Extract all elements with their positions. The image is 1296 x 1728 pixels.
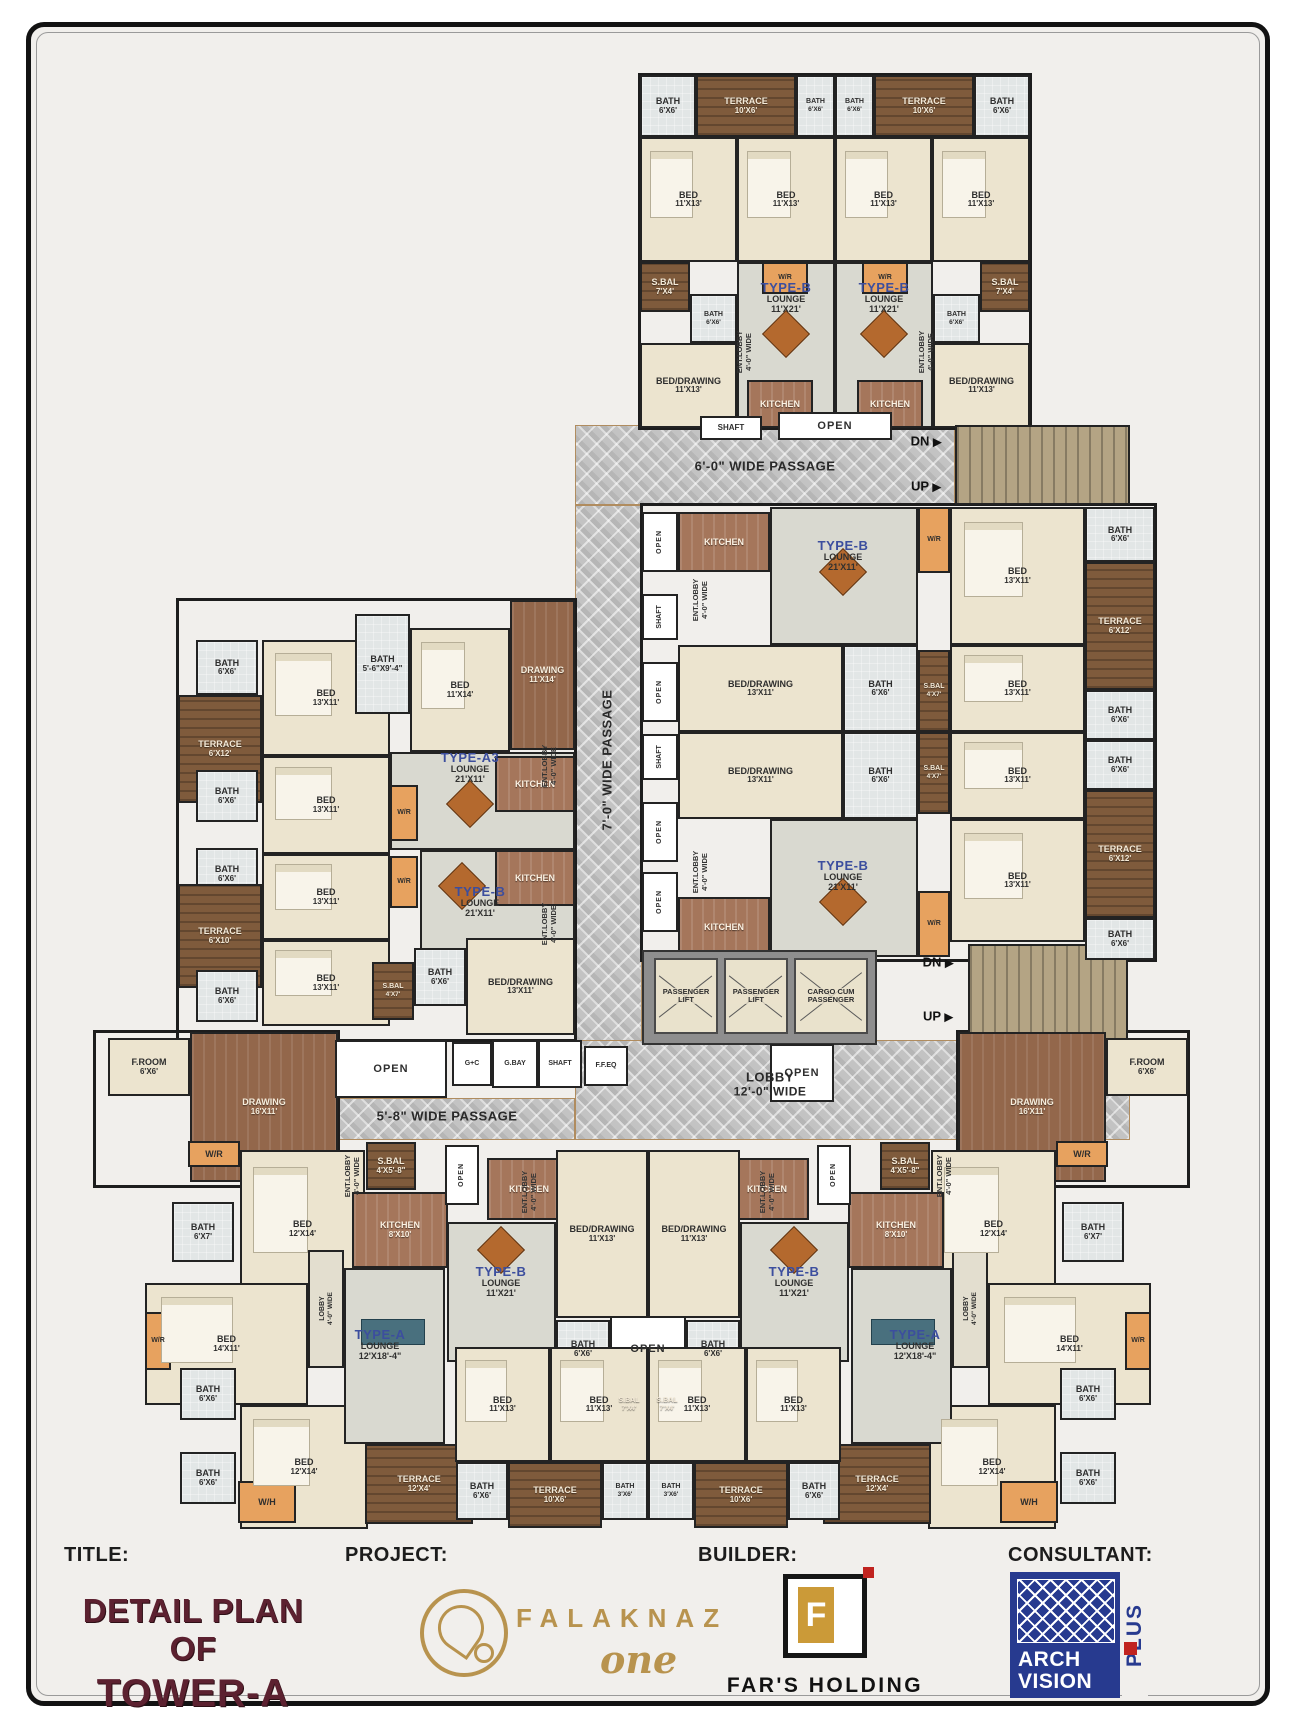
w-r-label: W/R: [1131, 1337, 1145, 1345]
bed-label: BED11'X13': [489, 1395, 516, 1414]
bath-label: BATH6'X6': [470, 1481, 494, 1500]
terrace-label: TERRACE10'X6': [533, 1485, 577, 1504]
w-r-label: W/R: [927, 536, 941, 544]
w-r-area: W/R: [918, 891, 950, 957]
bed-area: BED11'X13': [746, 1347, 841, 1462]
drawing-title-line1: DETAIL PLAN OF: [58, 1592, 328, 1668]
bath-area: BATH6'X6': [180, 1368, 236, 1420]
bath-area: BATH6'X6': [974, 75, 1030, 137]
shaft-label: SHAFT: [656, 745, 664, 768]
terrace-label: TERRACE6'X12': [1098, 844, 1142, 863]
bed-area: BED13'X11': [950, 507, 1085, 645]
bed-drawing-area: BED/DRAWING13'X11': [678, 732, 843, 819]
bath-label: BATH6'X6': [1108, 755, 1132, 774]
w-r-label: W/R: [397, 878, 411, 886]
bath-area: BATH6'X6': [788, 1462, 840, 1520]
bed-label: BED11'X13': [773, 190, 800, 209]
open-label: OPEN: [656, 530, 664, 554]
builder-name: FAR'S HOLDING: [700, 1674, 950, 1698]
bed-area: BED11'X13': [932, 137, 1030, 262]
kitchen-area: KITCHEN: [678, 512, 770, 572]
title-label: TITLE:: [64, 1544, 129, 1567]
bath-label: BATH6'X6': [868, 679, 892, 698]
open-area: OPEN: [642, 662, 678, 722]
bed-label: BED11'X13': [684, 1395, 711, 1414]
floor-plan-sheet: BATH6'X6'TERRACE10'X6'BATH6'X6'BATH6'X6'…: [0, 0, 1296, 1728]
ent-lobby-label: ENT.LOBBY4'-0" WIDE: [735, 331, 753, 374]
bath-label: BATH6'X6': [701, 1339, 725, 1358]
bath-label: BATH6'X6': [215, 658, 239, 677]
s-bal-area: S.BAL4'X7': [918, 732, 950, 814]
f-room-label: F.ROOM6'X6': [132, 1057, 167, 1076]
bed-area: BED11'X13': [455, 1347, 550, 1462]
stair-arrow-icon: ▶: [932, 482, 940, 494]
bed-label: BED12'X14': [980, 1219, 1007, 1238]
open-area: OPEN: [817, 1145, 851, 1205]
ent-lobby-label: ENT.LOBBY4'-0" WIDE: [917, 331, 935, 374]
archvision-pattern-icon: [1017, 1579, 1115, 1643]
project-label: PROJECT:: [345, 1544, 448, 1567]
kitchen-label: KITCHEN: [704, 537, 744, 547]
archvision-red-square-icon: [1124, 1642, 1137, 1655]
type-a-unit-label: TYPE-ALOUNGE12'X18'-4": [890, 1328, 941, 1362]
shaft-area: SHAFT: [700, 416, 762, 440]
bath-label: BATH6'X7': [191, 1222, 215, 1241]
s-bal-label: S.BAL4'X5'-8": [891, 1156, 920, 1175]
builder-logo-red-dot-icon: [863, 1567, 874, 1578]
bed-drawing-label: BED/DRAWING11'X13': [570, 1224, 635, 1243]
builder-logo: F FAR'S HOLDING: [700, 1574, 950, 1698]
stair-dn-label: DN ▶: [923, 955, 954, 970]
bed-label: BED13'X11': [1004, 766, 1031, 785]
bath-area: BATH3'X6': [602, 1462, 648, 1520]
bed-drawing-area: BED/DRAWING11'X13': [933, 343, 1030, 428]
bed-area: BED13'X11': [950, 819, 1085, 942]
kitchen-label: KITCHEN: [704, 922, 744, 932]
kitchen-area: KITCHEN8'X10': [352, 1192, 448, 1268]
f-room-label: F.ROOM6'X6': [1130, 1057, 1165, 1076]
open-area: OPEN: [778, 412, 892, 440]
bed-area: BED11'X13': [640, 137, 737, 262]
bed-drawing-label: BED/DRAWING13'X11': [488, 977, 553, 996]
stair-arrow-icon: ▶: [933, 437, 941, 449]
bed-drawing-area: BED/DRAWING11'X13': [556, 1150, 648, 1318]
terrace-area: TERRACE6'X12': [1085, 562, 1155, 690]
cargo-cum-passenger-label: CARGO CUM PASSENGER: [796, 988, 866, 1005]
bed-label: BED13'X11': [313, 887, 340, 906]
open-area: OPEN: [642, 512, 678, 572]
type-b-unit-label: TYPE-BLOUNGE11'X21': [769, 1265, 820, 1299]
fars-holding-logo-icon: F: [783, 1574, 867, 1658]
consultant-name-vision: VISION: [1018, 1670, 1092, 1693]
s-bal-label: S.BAL7'X4': [992, 277, 1019, 296]
bath-label: BATH6'X6': [215, 786, 239, 805]
bath-area: BATH6'X7': [1062, 1202, 1124, 1262]
bed-area: BED11'X13': [835, 137, 932, 262]
terrace-label: TERRACE12'X4': [855, 1474, 899, 1493]
consultant-name: ARCH VISION: [1018, 1649, 1092, 1692]
drawing-label: DRAWING16'X11': [1010, 1097, 1054, 1116]
project-name: FALAKNAZ: [516, 1603, 728, 1634]
6-0-wide-passage-label: 6'-0" WIDE PASSAGE: [695, 460, 836, 475]
consultant-name-arch: ARCH: [1018, 1648, 1081, 1671]
open-area: OPEN: [445, 1145, 479, 1205]
terrace-area: TERRACE10'X6': [508, 1462, 602, 1528]
bath-area: BATH6'X6': [1085, 918, 1155, 960]
bath-label: BATH6'X6': [806, 98, 825, 113]
lobby-label: LOBBY4'-0" WIDE: [318, 1293, 333, 1326]
bath-label: BATH6'X6': [1076, 1468, 1100, 1487]
falaknaz-emblem-icon: [420, 1589, 508, 1677]
type-b-unit-label: TYPE-BLOUNGE21'X11': [455, 885, 506, 919]
open-area: OPEN: [642, 872, 678, 932]
shaft-label: SHAFT: [718, 424, 745, 433]
bath-label: BATH6'X6': [571, 1339, 595, 1358]
bed-label: BED12'X14': [289, 1219, 316, 1238]
bath-label: BATH6'X6': [656, 96, 680, 115]
bath-label: BATH6'X7': [1081, 1222, 1105, 1241]
bed-label: BED11'X13': [586, 1395, 613, 1414]
project-name-word: one: [600, 1637, 677, 1682]
s-bal-label: S.BAL7'X4': [619, 1397, 640, 1412]
bath-area: BATH6'X6': [456, 1462, 508, 1520]
lobby-label: LOBBY4'-0" WIDE: [962, 1293, 977, 1326]
w-r-label: W/R: [927, 920, 941, 928]
bath-label: BATH6'X6': [1108, 705, 1132, 724]
bed-label: BED11'X14': [447, 680, 474, 699]
open-label: OPEN: [656, 890, 664, 914]
bath-label: BATH6'X6': [802, 1481, 826, 1500]
s-bal-label: S.BAL4'X7': [924, 683, 945, 698]
stair-arrow-icon: ▶: [944, 1012, 952, 1024]
bath-area: BATH6'X6': [933, 294, 980, 343]
bath-area: BATH6'X6': [796, 75, 835, 137]
bath-area: BATH6'X6': [1085, 690, 1155, 740]
s-bal-label: S.BAL7'X4': [657, 1397, 678, 1412]
bath-label: BATH6'X6': [1108, 525, 1132, 544]
open-label: OPEN: [630, 1343, 665, 1355]
ent-lobby-label: ENT.LOBBY4'-0" WIDE: [691, 851, 709, 894]
bath-area: BATH6'X6': [180, 1452, 236, 1504]
bed-area: BED13'X11': [950, 645, 1085, 732]
w-r-label: W/R: [151, 1337, 165, 1345]
bed-label: BED14'X11': [213, 1334, 240, 1353]
w-h-label: W/H: [1020, 1497, 1038, 1507]
w-r-area: W/R: [390, 856, 418, 908]
s-bal-area: S.BAL4'X5'-8": [880, 1142, 930, 1190]
bath-area: BATH3'X6': [648, 1462, 694, 1520]
bath-label: BATH6'X6': [947, 311, 966, 326]
bed-label: BED13'X11': [313, 688, 340, 707]
kitchen-area: KITCHEN: [495, 756, 575, 812]
kitchen-label: KITCHEN: [515, 873, 555, 883]
bath-label: BATH6'X6': [428, 967, 452, 986]
bath-label: BATH3'X6': [662, 1483, 681, 1498]
open-area: OPEN: [335, 1040, 447, 1098]
f-f-eq-area: F.F.EQ: [584, 1046, 628, 1086]
bed-drawing-area: BED/DRAWING13'X11': [678, 645, 843, 732]
bath-area: BATH6'X6': [196, 770, 258, 822]
ent-lobby-label: ENT.LOBBY4'-0" WIDE: [540, 745, 558, 788]
terrace-label: TERRACE10'X6': [724, 96, 768, 115]
bed-label: BED11'X13': [675, 190, 702, 209]
drawing-area: DRAWING11'X14': [510, 600, 575, 750]
bath-area: BATH6'X6': [196, 970, 258, 1022]
stair-dn-label: DN ▶: [911, 434, 942, 449]
f-room-area: F.ROOM6'X6': [1106, 1038, 1188, 1096]
bath-label: BATH6'X6': [990, 96, 1014, 115]
kitchen-area: KITCHEN8'X10': [848, 1192, 944, 1268]
kitchen-area: KITCHEN: [678, 897, 770, 957]
bed-drawing-area: BED/DRAWING13'X11': [466, 938, 575, 1035]
passenger-lift-area: PASSENGER LIFT: [654, 958, 718, 1034]
bath-label: BATH3'X6': [616, 1483, 635, 1498]
bed-label: BED14'X11': [1056, 1334, 1083, 1353]
bath-label: BATH6'X6': [196, 1468, 220, 1487]
bed-label: BED13'X11': [1004, 566, 1031, 585]
s-bal-label: S.BAL4'X5'-8": [377, 1156, 406, 1175]
stair-up-label: UP ▶: [911, 479, 941, 494]
bed-label: BED11'X13': [780, 1395, 807, 1414]
bed-label: BED11'X13': [968, 190, 995, 209]
w-r-area: W/R: [1125, 1312, 1151, 1370]
drawing-label: DRAWING16'X11': [242, 1097, 286, 1116]
type-b-unit-label: TYPE-BLOUNGE21'X11': [818, 859, 869, 893]
open-label: OPEN: [458, 1163, 466, 1187]
terrace-label: TERRACE6'X12': [198, 739, 242, 758]
open-label: OPEN: [656, 820, 664, 844]
type-a3-unit-label: TYPE-A3LOUNGE21'X11': [441, 751, 499, 785]
bath-label: BATH6'X6': [215, 864, 239, 883]
shaft-label: SHAFT: [656, 605, 664, 628]
s-bal-label: S.BAL4'X7': [924, 765, 945, 780]
kitchen-area: KITCHEN: [495, 850, 575, 906]
passenger-lift-label: PASSENGER LIFT: [656, 988, 716, 1005]
w-r-area: W/R: [390, 785, 418, 841]
bath-label: BATH6'X6': [1076, 1384, 1100, 1403]
bed-area: BED13'X11': [262, 854, 390, 940]
bed-label: BED12'X14': [291, 1457, 318, 1476]
bed-label: BED13'X11': [313, 973, 340, 992]
bath-label: BATH6'X6': [196, 1384, 220, 1403]
ent-lobby-label: ENT.LOBBY4'-0" WIDE: [343, 1155, 361, 1198]
w-h-area: W/H: [238, 1481, 296, 1523]
f-room-area: F.ROOM6'X6': [108, 1038, 190, 1096]
bath-area: BATH6'X6': [414, 948, 466, 1006]
open-label: OPEN: [817, 420, 852, 432]
drawing-label: DRAWING11'X14': [521, 665, 565, 684]
kitchen-label: KITCHEN8'X10': [876, 1220, 916, 1239]
bath-area: BATH6'X6': [196, 640, 258, 695]
bath-area: BATH6'X6': [843, 732, 918, 819]
g-c-area: G+C: [452, 1042, 492, 1086]
bed-drawing-label: BED/DRAWING13'X11': [728, 679, 793, 698]
ent-lobby-label: ENT.LOBBY4'-0" WIDE: [935, 1155, 953, 1198]
consultant-logo: ARCH VISION PLUS: [1010, 1572, 1160, 1700]
type-b-unit-label: TYPE-BLOUNGE11'X21': [761, 281, 812, 315]
s-bal-area: S.BAL4'X5'-8": [366, 1142, 416, 1190]
bath-area: BATH6'X6': [1060, 1368, 1116, 1420]
terrace-label: TERRACE12'X4': [397, 1474, 441, 1493]
w-r-label: W/R: [1073, 1149, 1091, 1159]
type-b-unit-label: TYPE-BLOUNGE11'X21': [476, 1265, 527, 1299]
bed-label: BED13'X11': [1004, 871, 1031, 890]
bath-area: BATH6'X7': [172, 1202, 234, 1262]
ent-lobby-label: ENT.LOBBY4'-0" WIDE: [758, 1171, 776, 1214]
bath-label: BATH6'X6': [868, 766, 892, 785]
ent-lobby-label: ENT.LOBBY4'-0" WIDE: [520, 1171, 538, 1214]
builder-label: BUILDER:: [698, 1544, 798, 1567]
bed-drawing-label: BED/DRAWING13'X11': [728, 766, 793, 785]
bath-label: BATH6'X6': [845, 98, 864, 113]
terrace-label: TERRACE6'X12': [1098, 616, 1142, 635]
w-r-label: W/R: [397, 809, 411, 817]
g-bay-area: G.BAY: [492, 1040, 538, 1088]
consultant-plus-strip: PLUS: [1122, 1572, 1148, 1698]
7-0-wide-passage-label: 7'-0" WIDE PASSAGE: [601, 690, 616, 831]
bed-area: BED13'X11': [950, 732, 1085, 819]
terrace-area: TERRACE10'X6': [874, 75, 974, 137]
kitchen-label: KITCHEN: [760, 399, 800, 409]
builder-initial: F: [798, 1587, 834, 1643]
type-b-unit-label: TYPE-BLOUNGE11'X21': [859, 281, 910, 315]
w-r-label: W/R: [205, 1149, 223, 1159]
bath-area: BATH5'-6"X9'-4": [355, 614, 410, 714]
terrace-label: TERRACE10'X6': [719, 1485, 763, 1504]
consultant-label: CONSULTANT:: [1008, 1544, 1153, 1567]
terrace-label: TERRACE6'X10': [198, 926, 242, 945]
s-bal-area: S.BAL7'X4': [640, 262, 690, 312]
terrace-area: TERRACE10'X6': [694, 1462, 788, 1528]
w-r-area: W/R: [188, 1141, 240, 1167]
s-bal-area: S.BAL4'X7': [372, 962, 414, 1020]
consultant-name-plus: PLUS: [1123, 1603, 1147, 1667]
drawing-title-line2: TOWER-A: [58, 1672, 328, 1716]
stair-arrow-icon: ▶: [945, 958, 953, 970]
w-r-area: W/R: [918, 507, 950, 573]
drawing-title: DETAIL PLAN OF TOWER-A: [58, 1592, 328, 1716]
bath-area: BATH6'X6': [835, 75, 874, 137]
bath-area: BATH6'X6': [1085, 507, 1155, 562]
lobby-area: LOBBY4'-0" WIDE: [308, 1250, 344, 1368]
archvision-logo-icon: ARCH VISION: [1010, 1572, 1120, 1698]
g-c-label: G+C: [465, 1060, 480, 1068]
bed-label: BED11'X13': [870, 190, 897, 209]
5-8-wide-passage-label: 5'-8" WIDE PASSAGE: [377, 1110, 518, 1125]
kitchen-label: KITCHEN8'X10': [380, 1220, 420, 1239]
passenger-lift-label: PASSENGER LIFT: [726, 988, 786, 1005]
bed-drawing-label: BED/DRAWING11'X13': [656, 376, 721, 395]
f-f-eq-label: F.F.EQ: [595, 1062, 616, 1070]
bed-area: BED11'X13': [737, 137, 835, 262]
bed-drawing-label: BED/DRAWING11'X13': [949, 376, 1014, 395]
terrace-label: TERRACE10'X6': [902, 96, 946, 115]
bed-label: BED13'X11': [313, 795, 340, 814]
s-bal-label: S.BAL4'X7': [383, 983, 404, 998]
w-h-label: W/H: [258, 1497, 276, 1507]
g-bay-label: G.BAY: [504, 1060, 526, 1068]
open-label: OPEN: [830, 1163, 838, 1187]
lobby-area: LOBBY4'-0" WIDE: [952, 1250, 988, 1368]
bath-label: BATH6'X6': [215, 986, 239, 1005]
shaft-area: SHAFT: [538, 1040, 582, 1088]
lobby-label: LOBBY12'-0" WIDE: [734, 1071, 807, 1100]
s-bal-area: S.BAL7'X4': [980, 262, 1030, 312]
type-b-unit-label: TYPE-BLOUNGE21'X11': [818, 539, 869, 573]
ent-lobby-label: ENT.LOBBY4'-0" WIDE: [691, 579, 709, 622]
floor-plan: BATH6'X6'TERRACE10'X6'BATH6'X6'BATH6'X6'…: [0, 0, 1296, 1530]
bath-area: BATH6'X6': [843, 645, 918, 732]
bed-label: BED13'X11': [1004, 679, 1031, 698]
shaft-area: SHAFT: [642, 594, 678, 640]
ent-lobby-label: ENT.LOBBY4'-0" WIDE: [540, 903, 558, 946]
kitchen-label: KITCHEN: [870, 399, 910, 409]
bath-area: BATH6'X6': [1085, 740, 1155, 790]
stair-up-label: UP ▶: [923, 1009, 953, 1024]
open-label: OPEN: [656, 680, 664, 704]
terrace-area: TERRACE6'X12': [1085, 790, 1155, 918]
bed-drawing-area: BED/DRAWING11'X13': [648, 1150, 740, 1318]
bath-label: BATH6'X6': [704, 311, 723, 326]
bed-area: BED13'X11': [262, 940, 390, 1026]
bath-area: BATH6'X6': [640, 75, 696, 137]
bed-label: BED12'X14': [979, 1457, 1006, 1476]
shaft-label: SHAFT: [548, 1060, 571, 1068]
bed-area: BED11'X14': [410, 628, 510, 752]
open-area: OPEN: [642, 802, 678, 862]
open-label: OPEN: [373, 1063, 408, 1075]
bed-drawing-label: BED/DRAWING11'X13': [662, 1224, 727, 1243]
s-bal-label: S.BAL7'X4': [652, 277, 679, 296]
s-bal-area: S.BAL4'X7': [918, 650, 950, 732]
w-h-area: W/H: [1000, 1481, 1058, 1523]
bath-area: BATH6'X6': [690, 294, 737, 343]
bath-area: BATH6'X6': [1060, 1452, 1116, 1504]
passenger-lift-area: PASSENGER LIFT: [724, 958, 788, 1034]
cargo-cum-passenger-area: CARGO CUM PASSENGER: [794, 958, 868, 1034]
type-a-unit-label: TYPE-ALOUNGE12'X18'-4": [355, 1328, 406, 1362]
bath-label: BATH5'-6"X9'-4": [363, 654, 403, 673]
shaft-area: SHAFT: [642, 734, 678, 780]
terrace-area: TERRACE10'X6': [696, 75, 796, 137]
bed-area: BED13'X11': [262, 756, 390, 854]
str-area: [955, 425, 1130, 505]
bath-label: BATH6'X6': [1108, 929, 1132, 948]
w-r-area: W/R: [1056, 1141, 1108, 1167]
